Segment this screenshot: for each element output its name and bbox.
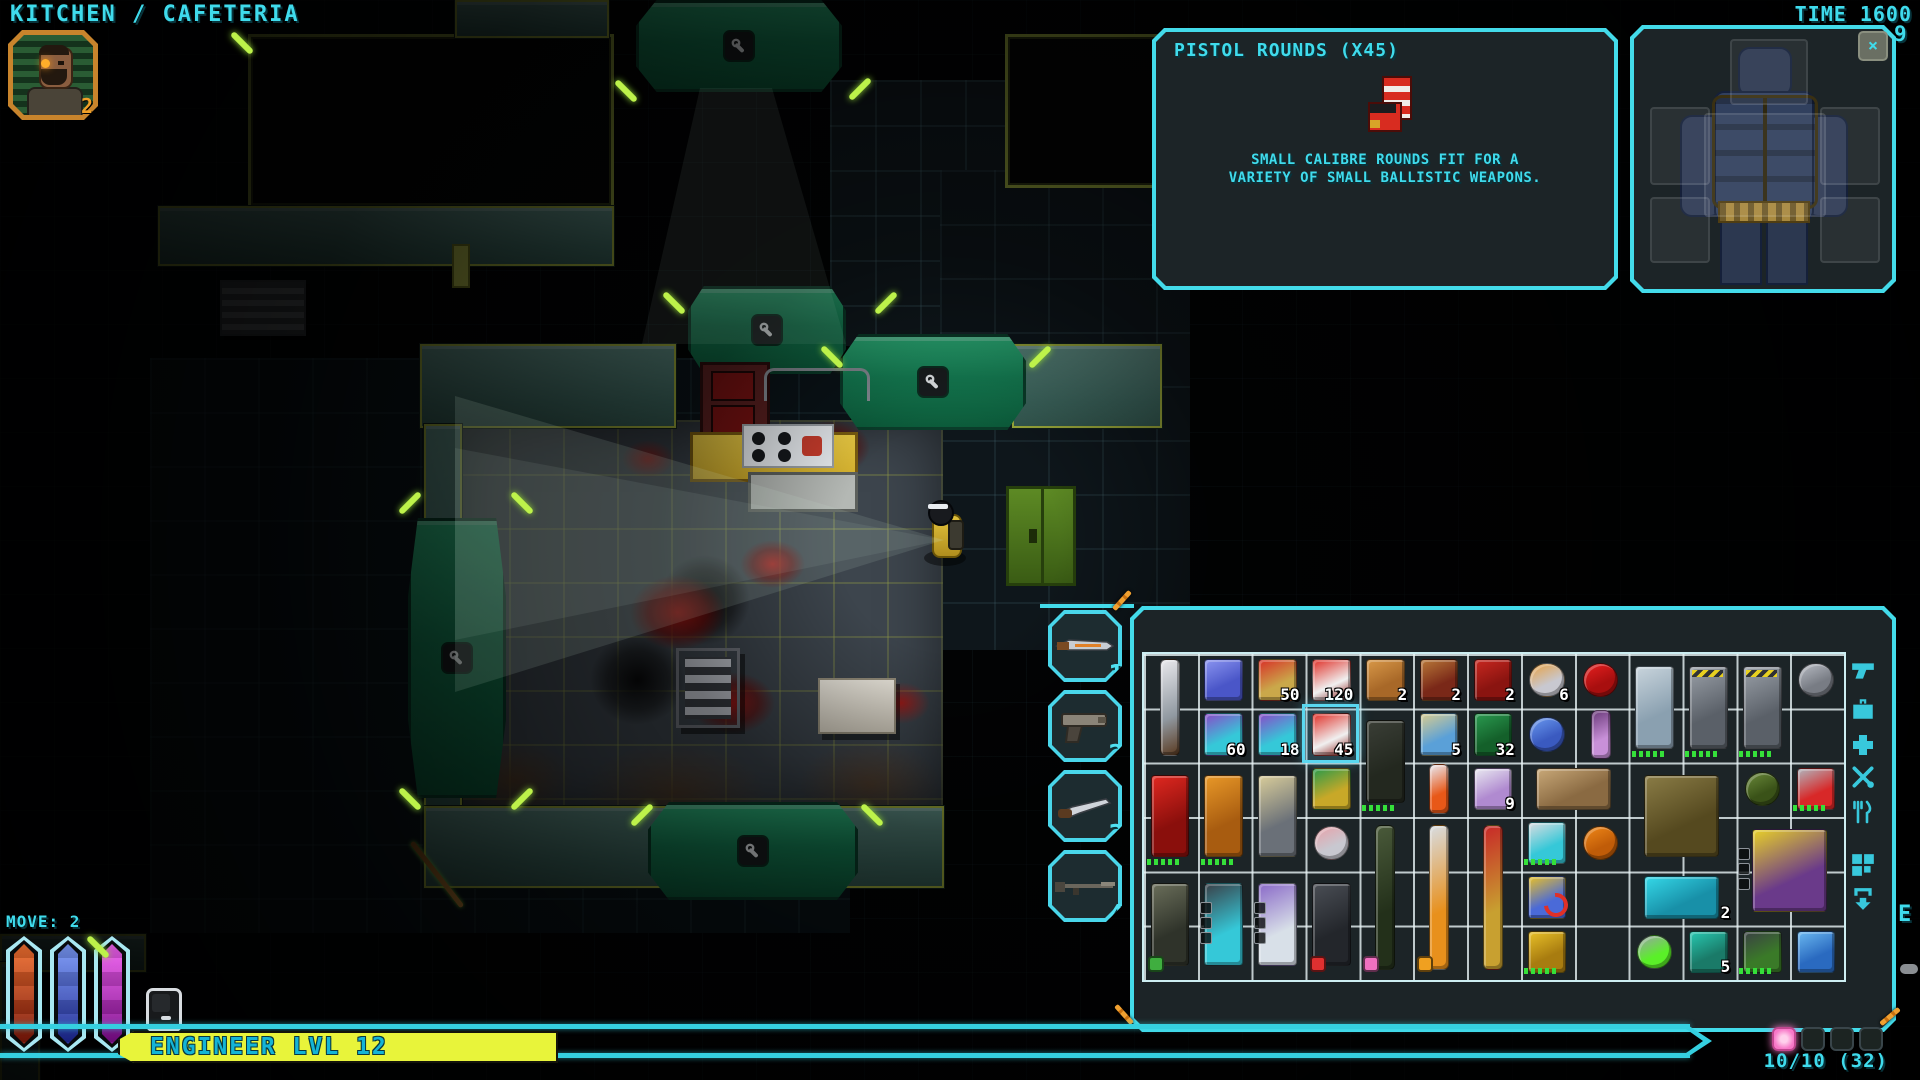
edge-handle (1900, 964, 1918, 974)
player-backpack (948, 520, 964, 550)
tab-briefcase[interactable] (1848, 694, 1878, 724)
durability-pips (1524, 859, 1558, 865)
endurance-bar (50, 936, 86, 1052)
durability-pips (1739, 968, 1773, 974)
tab-repair-tools[interactable] (1848, 762, 1878, 792)
burner (752, 449, 765, 462)
machete-icon (1429, 825, 1449, 970)
circuit-plate-icon (1312, 768, 1351, 810)
door-wrench-icon (917, 366, 949, 398)
armored-locker-icon (1743, 666, 1782, 748)
alien-feather[interactable] (1574, 707, 1626, 759)
item-count: 5 (1721, 957, 1731, 976)
player-headband (928, 504, 948, 509)
key-carabiner[interactable] (1520, 870, 1572, 922)
pie[interactable]: 6 (1520, 653, 1572, 705)
duct-tape[interactable] (1789, 653, 1841, 705)
wrench[interactable] (1520, 925, 1572, 977)
hotbar-slot-4[interactable]: 4 (1048, 850, 1122, 922)
stove[interactable] (742, 424, 834, 468)
player-character[interactable] (918, 498, 970, 572)
class-banner-label: ENGINEER LVL 12 (150, 1034, 388, 1060)
tooltip-description-line2: VARIETY OF SMALL BALLISTIC WEAPONS. (1156, 170, 1614, 186)
equip-slot-left-shoulder[interactable] (1650, 107, 1710, 185)
soap-bar-icon (1529, 717, 1564, 752)
tab-transfer-arrow[interactable] (1848, 884, 1878, 914)
health-bar-fill (14, 944, 34, 1044)
psi-bar-fill (102, 944, 122, 1044)
durability-pips (1793, 805, 1827, 811)
equip-slot-left-hand[interactable] (1650, 197, 1710, 263)
energy-pistol[interactable] (1251, 870, 1303, 977)
equip-slot-chest[interactable] (1704, 113, 1826, 217)
tab-medical-cross[interactable] (1848, 730, 1878, 760)
robot-module-icon (1797, 768, 1836, 810)
door-lock-icon (723, 30, 755, 62)
wall (158, 206, 614, 266)
red-capsules-icon (1583, 663, 1618, 698)
glass-cube[interactable] (1789, 925, 1841, 977)
hover-discs[interactable] (1628, 925, 1680, 977)
item-count: 2 (1721, 903, 1731, 922)
robot-module[interactable] (1789, 762, 1841, 814)
locker-seam (1041, 489, 1044, 583)
metal-canister-icon (1635, 666, 1674, 748)
mannequin-left-leg (1720, 215, 1762, 285)
deployable-turret[interactable] (1358, 707, 1410, 814)
ration-pack[interactable]: 2 (1466, 653, 1518, 705)
wall-vent-machine[interactable] (220, 280, 306, 336)
portrait-beard (41, 69, 67, 85)
door-module-vertical[interactable] (408, 518, 506, 798)
equip-slot-head[interactable] (1730, 39, 1808, 105)
crystal-shard-icon (1204, 659, 1243, 701)
door-wrench-icon (441, 642, 473, 674)
durability-pips (1524, 968, 1558, 974)
revolver[interactable] (1305, 870, 1357, 977)
burner (778, 432, 791, 445)
item-count: 6 (1559, 685, 1569, 704)
ornate-armor[interactable] (1735, 816, 1841, 923)
metal-canister[interactable] (1628, 653, 1680, 760)
class-banner: ENGINEER LVL 12 (118, 1031, 558, 1063)
revolver-icon (1312, 883, 1351, 965)
game-screen: KITCHEN / CAFETERIA TIME 1600 9 2 PISTOL… (0, 0, 1920, 1080)
counter-drawer[interactable] (748, 472, 858, 512)
durability-pips (1739, 751, 1773, 757)
thermal-blanket-icon (1644, 876, 1719, 918)
cyan-pistol[interactable] (1197, 870, 1249, 977)
bottom-bar-line (0, 1024, 1690, 1029)
machete[interactable] (1412, 816, 1464, 977)
chem-vial-icon (1429, 764, 1449, 814)
meat-plate-icon (1314, 826, 1349, 861)
hotbar-slot-1[interactable]: 1 (1048, 610, 1122, 682)
rifle-rounds-tin[interactable]: 50 (1251, 653, 1303, 705)
wall (455, 0, 609, 38)
oven-window (711, 371, 755, 401)
assault-rifle-icon (1375, 825, 1395, 970)
stim-syringes[interactable]: 60 (1197, 707, 1249, 759)
duct-tape-icon (1798, 663, 1833, 698)
equip-slot-right-hand[interactable] (1820, 197, 1880, 263)
item-count: 45 (1334, 740, 1353, 759)
burner (752, 432, 765, 445)
page-dot-2[interactable] (1801, 1027, 1825, 1051)
wall-stub (452, 244, 470, 288)
slime-helmet-icon (1745, 772, 1780, 807)
item-count: 32 (1496, 740, 1515, 759)
move-points-label: MOVE: 2 (6, 912, 80, 931)
assault-rifle[interactable] (1358, 816, 1410, 977)
tooltip-title: PISTOL ROUNDS (X45) (1174, 40, 1399, 61)
room-outline (248, 34, 614, 208)
red-capsules[interactable] (1574, 653, 1626, 705)
pager[interactable] (1520, 816, 1572, 868)
mannequin-right-leg (1766, 215, 1808, 285)
ammo-box-icon (1368, 76, 1414, 134)
sandwich[interactable]: 2 (1412, 653, 1464, 705)
green-locker[interactable] (1006, 486, 1076, 586)
slime-helmet[interactable] (1735, 762, 1787, 814)
tactical-harness[interactable] (1520, 762, 1626, 814)
mod-slots (1738, 848, 1750, 890)
item-count: 60 (1226, 740, 1245, 759)
pager-icon (1528, 822, 1567, 864)
capacity-label: 10/10 (32) (1700, 1050, 1888, 1072)
item-count: 2 (1451, 685, 1461, 704)
ornate-armor-icon (1752, 829, 1827, 911)
equip-slot-right-shoulder[interactable] (1820, 107, 1880, 185)
bread[interactable]: 2 (1358, 653, 1410, 705)
combat-vest-icon (1644, 775, 1719, 857)
item-count: 18 (1280, 740, 1299, 759)
corner-number: 9 (1894, 22, 1908, 46)
equipment-panel: × (1630, 25, 1896, 293)
tab-pistol[interactable] (1848, 656, 1878, 686)
storage-cube[interactable]: 9 (1466, 762, 1518, 814)
scanner-device[interactable] (1735, 925, 1787, 977)
stove-dial (802, 436, 822, 456)
page-dot-3[interactable] (1830, 1027, 1854, 1051)
circuit-plate[interactable] (1305, 762, 1357, 814)
sidearm-pistol[interactable] (1143, 870, 1195, 977)
durability-pips (1632, 751, 1666, 757)
location-title: KITCHEN / CAFETERIA (10, 2, 300, 27)
waste-bin[interactable] (676, 648, 740, 728)
tooltip-description-line1: SMALL CALIBRE ROUNDS FIT FOR A (1156, 152, 1614, 168)
counter-rail (764, 368, 870, 401)
item-count: 2 (1505, 685, 1515, 704)
blood-stain (630, 575, 725, 650)
meat-plate[interactable] (1305, 816, 1357, 868)
portrait-hair (39, 45, 69, 55)
glass-cube-icon (1797, 931, 1836, 973)
hotbar-slot-3[interactable]: 3 (1048, 770, 1122, 842)
stim-syringes[interactable]: 18 (1251, 707, 1303, 759)
durability-pips (1147, 859, 1181, 865)
blood-stain (740, 540, 805, 588)
grapple-tool-icon (1258, 775, 1297, 857)
deployable-turret-icon (1366, 720, 1405, 802)
crystal-shard[interactable] (1197, 653, 1249, 705)
hotbar-slot-2[interactable]: 2 (1048, 690, 1122, 762)
locker-handle (1029, 529, 1037, 543)
powered-gadget[interactable]: 5 (1681, 925, 1733, 977)
armored-locker[interactable] (1681, 653, 1733, 760)
locker-hazard-stripe (1746, 670, 1777, 677)
locker-hazard-stripe (1692, 670, 1723, 677)
sidearm-pistol-icon (1151, 883, 1190, 965)
orange-cabinet[interactable] (1197, 762, 1249, 869)
page-dot-1[interactable] (1772, 1027, 1796, 1051)
thermal-blanket[interactable]: 2 (1628, 870, 1734, 922)
red-spear-icon (1483, 825, 1503, 970)
page-dot-4[interactable] (1859, 1027, 1883, 1051)
item-quality-dot (1148, 956, 1164, 972)
scanner-device-icon (1743, 931, 1782, 973)
hover-discs-icon (1637, 935, 1672, 970)
item-count: 9 (1505, 794, 1515, 813)
red-spear[interactable] (1466, 816, 1518, 977)
item-count: 5 (1451, 740, 1461, 759)
item-quality-dot (1363, 956, 1379, 972)
tactical-harness-icon (1536, 768, 1611, 810)
alien-feather-icon (1591, 710, 1611, 760)
item-count: 50 (1280, 685, 1299, 704)
blood-stain (622, 440, 674, 478)
durability-pips (1685, 751, 1719, 757)
portrait-cyber-eye (41, 59, 50, 68)
endurance-bar-fill (58, 944, 78, 1044)
orange-pills[interactable] (1574, 816, 1626, 868)
item-quality-dot (1417, 956, 1433, 972)
combat-vest[interactable] (1628, 762, 1734, 869)
tab-storage-blocks[interactable] (1848, 850, 1878, 880)
room-outline (1005, 34, 1169, 188)
durability-pips (1201, 859, 1235, 865)
pda-screen (152, 994, 170, 1012)
door-module[interactable] (636, 0, 842, 92)
door-module[interactable] (688, 286, 846, 374)
chem-vial[interactable] (1412, 762, 1464, 814)
item-quality-dot (1310, 956, 1326, 972)
rifle-ammo-box[interactable]: 5 (1412, 707, 1464, 759)
kitchen-top-wall-left (420, 344, 676, 428)
ammo-crate[interactable]: 32 (1466, 707, 1518, 759)
red-cabinet[interactable] (1143, 762, 1195, 869)
door-module[interactable] (648, 802, 858, 900)
combat-knife[interactable] (1143, 653, 1195, 760)
wrench-icon (1528, 931, 1567, 973)
combat-knife-icon (1160, 659, 1180, 757)
item-count: 2 (1398, 685, 1408, 704)
pistol-rounds-box[interactable]: 120 (1305, 653, 1357, 705)
dining-table[interactable] (818, 678, 896, 734)
door-lock-icon (751, 314, 783, 346)
orange-cabinet-icon (1204, 775, 1243, 857)
durability-pips (1362, 805, 1396, 811)
mod-slots (1254, 902, 1266, 944)
health-bar (6, 936, 42, 1052)
armored-locker[interactable] (1735, 653, 1787, 760)
portrait-eye (58, 61, 64, 65)
pda-buttons (161, 1016, 171, 1020)
character-portrait[interactable]: 2 (8, 30, 98, 120)
item-count: 120 (1324, 685, 1353, 704)
item-tooltip-panel: PISTOL ROUNDS (X45) SMALL CALIBRE ROUNDS… (1152, 28, 1618, 290)
mod-slots (1200, 902, 1212, 944)
tab-food[interactable] (1848, 797, 1878, 827)
door-wrench-icon (737, 835, 769, 867)
orange-pills-icon (1583, 826, 1618, 861)
red-cabinet-icon (1151, 775, 1190, 857)
pistol-rounds[interactable]: 45 (1305, 707, 1357, 759)
soap-bar[interactable] (1520, 707, 1572, 759)
burner (778, 449, 791, 462)
portrait-torso (27, 87, 83, 119)
edge-letter: E (1898, 902, 1912, 927)
panel-close-button[interactable]: × (1858, 31, 1888, 61)
armored-locker-icon (1689, 666, 1728, 748)
grapple-tool[interactable] (1251, 762, 1303, 869)
